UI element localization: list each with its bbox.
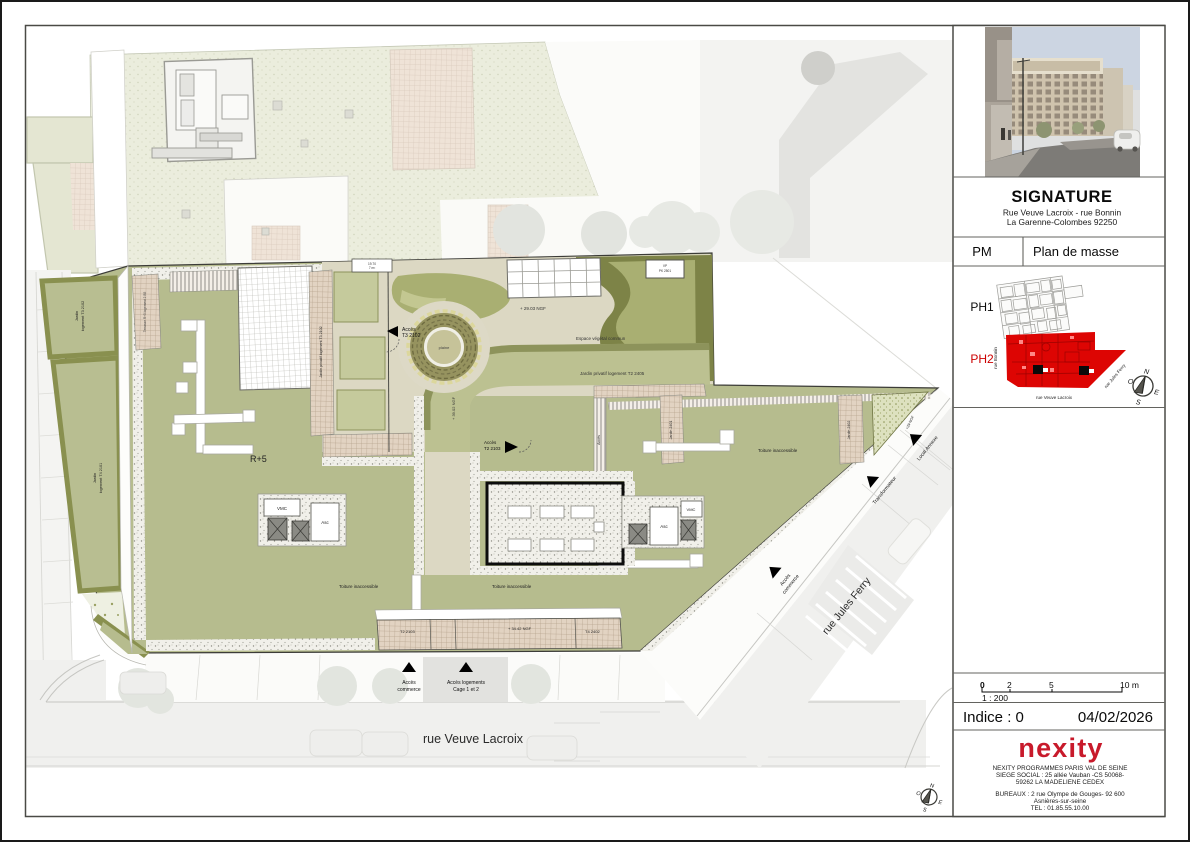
svg-text:PH2: PH2 — [970, 352, 994, 366]
svg-text:BUREAUX : 2 rue Olympe de Goug: BUREAUX : 2 rue Olympe de Gouges- 92 600 — [995, 791, 1125, 798]
svg-text:Toiture inaccessible: Toiture inaccessible — [339, 584, 379, 589]
svg-text:NEXITY PROGRAMMES PARIS VAL DE: NEXITY PROGRAMMES PARIS VAL DE SEINE — [993, 765, 1128, 772]
svg-text:T2 2103: T2 2103 — [400, 629, 415, 634]
svg-text:Plan de masse: Plan de masse — [1033, 244, 1119, 259]
svg-text:Accès: Accès — [402, 680, 416, 686]
svg-text:PM: PM — [972, 244, 992, 259]
svg-text:2: 2 — [1007, 680, 1012, 690]
svg-text:nexity: nexity — [1018, 733, 1103, 763]
svg-text:Jardin privatif logement T3 21: Jardin privatif logement T3 2102 — [319, 326, 323, 377]
svg-text:+ 34.42 NGF: + 34.42 NGF — [508, 626, 532, 631]
svg-text:Asnières-sur-seine: Asnières-sur-seine — [1034, 798, 1087, 805]
svg-text:Jardin 2402: Jardin 2402 — [847, 421, 851, 440]
svg-text:1 : 200: 1 : 200 — [982, 693, 1008, 703]
svg-text:PK 2501: PK 2501 — [659, 269, 671, 273]
svg-text:Jardin 2401: Jardin 2401 — [669, 421, 673, 440]
svg-text:Jardin: Jardin — [75, 311, 79, 321]
svg-text:Espace végétal commun: Espace végétal commun — [576, 336, 626, 341]
svg-text:Asc: Asc — [660, 524, 668, 529]
svg-text:5: 5 — [1049, 680, 1054, 690]
svg-text:04/02/2026: 04/02/2026 — [1078, 709, 1153, 726]
svg-text:logement T3 2102: logement T3 2102 — [81, 301, 85, 332]
svg-text:SIGNATURE: SIGNATURE — [1011, 188, 1112, 206]
svg-text:+ 29.03 NGF: + 29.03 NGF — [520, 306, 546, 311]
svg-text:Asc: Asc — [321, 520, 329, 525]
svg-text:Toiture inaccessible: Toiture inaccessible — [492, 584, 532, 589]
svg-text:rue Veuve Lacroix: rue Veuve Lacroix — [423, 732, 524, 746]
svg-text:Indice : 0: Indice : 0 — [963, 709, 1024, 726]
svg-text:7 m²: 7 m² — [369, 266, 375, 270]
svg-text:59262 LA MADELIENE CEDEX: 59262 LA MADELIENE CEDEX — [1016, 779, 1105, 786]
svg-text:VMC: VMC — [277, 506, 288, 511]
svg-text:Jardin: Jardin — [93, 473, 97, 483]
svg-text:TEL : 01.85.55.10.00: TEL : 01.85.55.10.00 — [1031, 805, 1090, 812]
svg-text:VP: VP — [663, 264, 667, 268]
svg-text:R+5: R+5 — [250, 454, 267, 464]
svg-text:T2 2103: T2 2103 — [484, 446, 501, 451]
svg-text:commerce: commerce — [397, 687, 421, 693]
svg-text:T4 2402: T4 2402 — [585, 629, 600, 634]
svg-text:La Garenne-Colombes 92250: La Garenne-Colombes 92250 — [1007, 217, 1118, 227]
svg-text:rue Veuve Lacroix: rue Veuve Lacroix — [1036, 395, 1073, 400]
svg-text:+ 39.02 NGF: + 39.02 NGF — [451, 396, 456, 420]
svg-text:10 m: 10 m — [1120, 680, 1139, 690]
svg-text:PH1: PH1 — [970, 300, 994, 314]
svg-text:Accès logements: Accès logements — [447, 680, 486, 686]
svg-text:Jardin privatif logement T2 24: Jardin privatif logement T2 2405 — [580, 371, 645, 376]
svg-text:Accès: Accès — [484, 440, 497, 445]
svg-text:rue Bonnin: rue Bonnin — [993, 347, 998, 369]
svg-text:Terrasse R+5 logement 2 B5: Terrasse R+5 logement 2 B5 — [143, 292, 147, 333]
svg-text:VMC: VMC — [687, 507, 696, 512]
svg-text:Rue Veuve Lacroix - rue Bonnin: Rue Veuve Lacroix - rue Bonnin — [1003, 208, 1122, 218]
svg-text:T3 2102: T3 2102 — [402, 333, 421, 339]
svg-text:plaine: plaine — [439, 345, 450, 350]
svg-text:Accès: Accès — [597, 435, 601, 445]
svg-text:SIEGE SOCIAL : 25 allée Vauban: SIEGE SOCIAL : 25 allée Vauban -CS 50068… — [996, 772, 1124, 779]
svg-text:logement T4 2101: logement T4 2101 — [99, 463, 103, 494]
svg-text:Cage 1 et 2: Cage 1 et 2 — [453, 687, 479, 693]
svg-text:Toiture inaccessible: Toiture inaccessible — [758, 448, 798, 453]
